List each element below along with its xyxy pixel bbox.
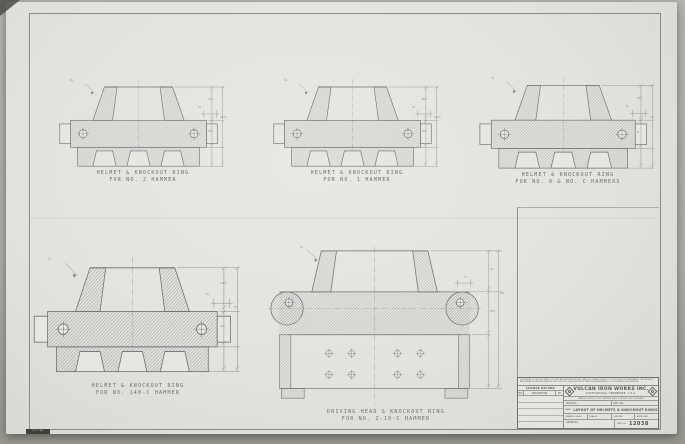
helmet-section-figure bbox=[272, 78, 442, 168]
drawing-caption: HELMET & KNOCKOUT RING FOR NO. 140-C HAM… bbox=[32, 383, 244, 397]
caption-line1: HELMET & KNOCKOUT RING bbox=[478, 172, 658, 179]
dim-label: ⅝ bbox=[198, 106, 201, 109]
drawing-helmet-no140c: 10½ 4½ 17 ¾ ½ HELMET & KNOCKOUT RING FOR… bbox=[32, 256, 244, 397]
dim-label: 13⅝ bbox=[434, 116, 441, 119]
dim-label: 4½ bbox=[220, 325, 225, 328]
number-row: ORDER NO. DWG. NO. 12038 bbox=[564, 420, 658, 428]
dim-label: 11 bbox=[490, 268, 494, 271]
drawing-number-cell: DWG. NO. 12038 bbox=[614, 420, 658, 428]
drawing-title: LAYOUT OF HELMETS & KNOCKOUT RINGS bbox=[573, 408, 658, 412]
approved-cell: APPROVED bbox=[634, 414, 658, 419]
company-name-wrap: VULCAN IRON WORKS INC. CHATTANOOGA, TENN… bbox=[573, 387, 649, 395]
company-block: VULCAN IRON WORKS INC. CHATTANOOGA, TENN… bbox=[564, 386, 658, 428]
caption-line2: FOR NO. 140-C HAMMER bbox=[32, 390, 244, 397]
dim-label: 4 bbox=[637, 131, 639, 134]
checked-cell: CHECKED bbox=[611, 414, 635, 419]
drawing-helmet-no0-noc: 9½ 4 15 ¾ ½ HELMET & KNOCKOUT RING FOR N… bbox=[478, 76, 658, 186]
dim-label: ¾ bbox=[626, 105, 629, 108]
caption-line2: FOR NO. 1 HAMMER bbox=[272, 177, 442, 184]
drawing-sheet: 7⅝ 3½ 12⅞ ⅝ ⅜ HELMET & KNOCKOUT RING FOR… bbox=[6, 2, 677, 434]
drawn-cell: DRAWN 4-28-43 bbox=[564, 414, 587, 419]
drawn-date: 4-28-43 bbox=[574, 416, 582, 418]
title-column-line bbox=[517, 207, 659, 378]
caption-line1: HELMET & KNOCKOUT RING bbox=[272, 170, 442, 177]
helmet-section-figure bbox=[478, 76, 658, 170]
name-label: NAME bbox=[564, 409, 573, 411]
drawing-caption: HELMET & KNOCKOUT RING FOR NO. 2 HAMMER bbox=[58, 170, 228, 184]
dim-label: ½ bbox=[48, 258, 51, 261]
drawing-number: 12038 bbox=[629, 421, 649, 427]
drawing-driving-head-no210c: 11 5½ 24 ⅞ ⅝ DRIVING HEAD & KNOCKOUT RIN… bbox=[268, 246, 504, 423]
driving-head-section-figure bbox=[268, 246, 504, 406]
corner-stamp: VULCAN bbox=[26, 429, 50, 434]
caption-line1: HELMET & KNOCKOUT RING bbox=[58, 170, 228, 177]
dim-label: 24 bbox=[500, 292, 504, 295]
title-block: THIS PRINT IS THE PROPERTY OF VULCAN IRO… bbox=[517, 377, 659, 429]
change-record-row bbox=[518, 396, 563, 403]
caption-line2: FOR NO. 2-10-C HAMMER bbox=[268, 416, 504, 423]
drawn-label: DRAWN bbox=[566, 416, 574, 418]
dim-label: ½ bbox=[491, 77, 494, 80]
dim-label: 7⅝ bbox=[208, 98, 213, 101]
caption-line1: HELMET & KNOCKOUT RING bbox=[32, 383, 244, 390]
change-record-table: CHANGE RECORD NO. DESCRIPTION BY bbox=[518, 386, 564, 428]
caption-line2: FOR NO. 2 HAMMER bbox=[58, 177, 228, 184]
company-header-row: VULCAN IRON WORKS INC. CHATTANOOGA, TENN… bbox=[564, 386, 658, 397]
change-record-row bbox=[518, 409, 563, 416]
pattern-cell: PATT. NO. bbox=[611, 401, 659, 405]
change-record-row bbox=[518, 422, 563, 428]
dim-label: 15 bbox=[650, 116, 654, 119]
caption-line1: DRIVING HEAD & KNOCKOUT RING bbox=[268, 409, 504, 416]
order-label: ORDER NO. bbox=[564, 420, 614, 428]
dim-label: ¾ bbox=[206, 293, 209, 296]
change-record-rows bbox=[518, 396, 563, 428]
dim-label: ⅜ bbox=[70, 79, 73, 82]
helmet-section-figure bbox=[58, 78, 228, 168]
dim-label: ⅞ bbox=[464, 276, 467, 279]
title-block-main: CHANGE RECORD NO. DESCRIPTION BY bbox=[518, 386, 658, 428]
change-record-row bbox=[518, 403, 563, 410]
dim-label: 3¾ bbox=[422, 130, 427, 133]
title-block-note: THIS PRINT IS THE PROPERTY OF VULCAN IRO… bbox=[518, 378, 658, 386]
helmet-section-figure bbox=[32, 256, 244, 374]
drawing-helmet-no2: 7⅝ 3½ 12⅞ ⅝ ⅜ HELMET & KNOCKOUT RING FOR… bbox=[58, 78, 228, 184]
dim-label: 3½ bbox=[208, 130, 213, 133]
material-cell: MATERIAL bbox=[564, 401, 611, 405]
dim-label: 10½ bbox=[220, 282, 227, 285]
dwg-no-label: DWG. NO. bbox=[617, 423, 627, 425]
vulcan-logo-icon bbox=[648, 386, 658, 396]
col-description: DESCRIPTION bbox=[524, 391, 555, 395]
company-location: CHATTANOOGA, TENNESSEE, U.S.A. bbox=[573, 392, 649, 395]
dim-label: ⅝ bbox=[300, 246, 303, 249]
drawing-caption: DRIVING HEAD & KNOCKOUT RING FOR NO. 2-1… bbox=[268, 409, 504, 423]
drawing-helmet-no1: 8¼ 3¾ 13⅝ ⅝ ⅜ HELMET & KNOCKOUT RING FOR… bbox=[272, 78, 442, 184]
dim-label: 12⅞ bbox=[220, 116, 227, 119]
name-row: NAME LAYOUT OF HELMETS & KNOCKOUT RINGS bbox=[564, 406, 658, 414]
caption-line2: FOR NO. 0 & NO. C HAMMERS bbox=[478, 179, 658, 186]
dim-label: 5½ bbox=[490, 310, 495, 313]
dim-label: ⅜ bbox=[284, 79, 287, 82]
col-by: BY bbox=[555, 391, 563, 395]
drawing-caption: HELMET & KNOCKOUT RING FOR NO. 0 & NO. C… bbox=[478, 172, 658, 186]
dim-label: 9½ bbox=[637, 97, 642, 100]
change-record-row bbox=[518, 416, 563, 423]
dim-label: 8¼ bbox=[422, 98, 427, 101]
dim-label: ⅝ bbox=[412, 106, 415, 109]
dim-label: 17 bbox=[234, 306, 238, 309]
scanned-engineering-drawing: 7⅝ 3½ 12⅞ ⅝ ⅜ HELMET & KNOCKOUT RING FOR… bbox=[0, 0, 685, 444]
drawing-caption: HELMET & KNOCKOUT RING FOR NO. 1 HAMMER bbox=[272, 170, 442, 184]
traced-cell: TRACED bbox=[587, 414, 611, 419]
